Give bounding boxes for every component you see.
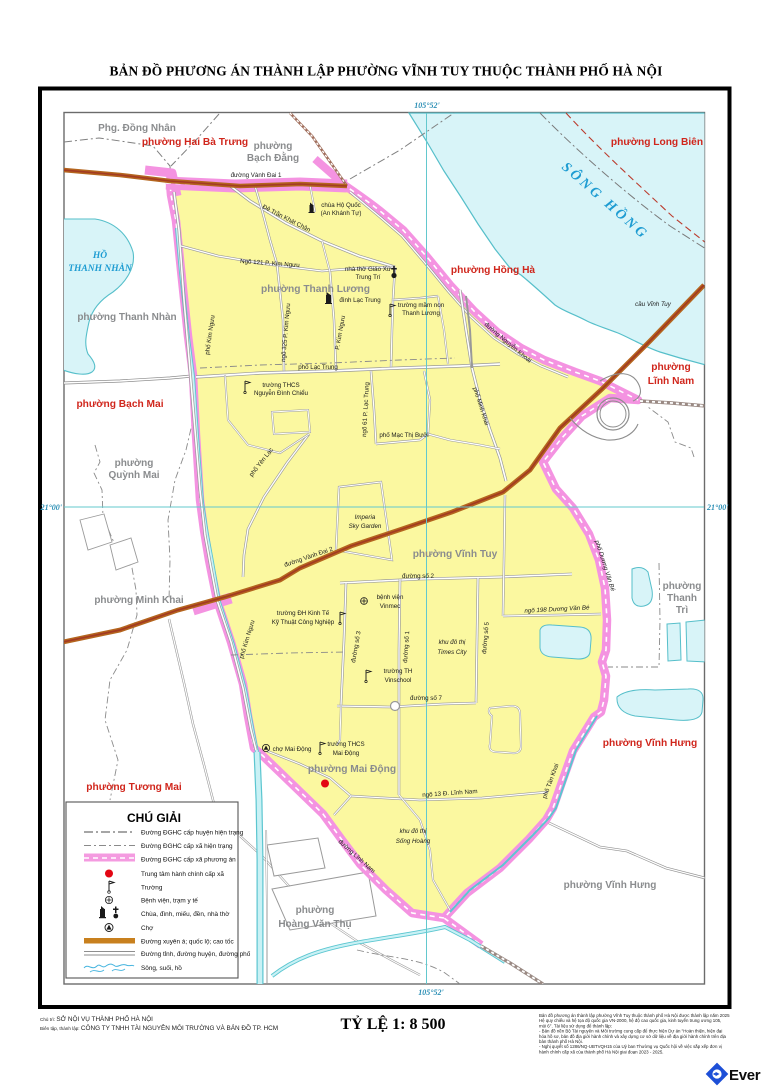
svg-text:trường TH: trường TH [384,668,413,675]
svg-text:phố Mạc Thị Bưởi: phố Mạc Thị Bưởi [379,432,428,439]
svg-text:THANH NHÀN: THANH NHÀN [68,262,133,274]
svg-text:CHÚ GIẢI: CHÚ GIẢI [127,810,181,825]
svg-text:phường Mai Động: phường Mai Động [308,764,396,775]
svg-text:Trung tâm hành chính cấp xã: Trung tâm hành chính cấp xã [141,869,224,878]
svg-text:Bệnh viện, trạm y tế: Bệnh viện, trạm y tế [141,896,198,905]
svg-text:Đường ĐGHC cấp xã phương án: Đường ĐGHC cấp xã phương án [141,855,236,864]
svg-text:phường: phường [115,458,154,469]
svg-text:Sống Hoàng: Sống Hoàng [396,838,431,845]
svg-text:Vinschool: Vinschool [385,677,412,684]
svg-text:phường: phường [254,141,293,152]
svg-text:21°00': 21°00' [706,503,729,512]
svg-text:Times City: Times City [437,649,467,656]
svg-text:bệnh viện: bệnh viện [377,594,404,601]
svg-text:Sông, suối, hồ: Sông, suối, hồ [141,963,182,972]
svg-text:Trường: Trường [141,885,163,892]
svg-text:TỶ LỆ 1: 8 500: TỶ LỆ 1: 8 500 [341,1014,446,1033]
svg-text:Vinmec: Vinmec [380,603,401,610]
svg-text:105°52': 105°52' [414,101,440,110]
svg-text:105°52': 105°52' [418,988,444,997]
svg-text:đường số 7: đường số 7 [410,695,442,702]
svg-text:Đường tỉnh, đường huyện, đường: Đường tỉnh, đường huyện, đường phố [141,949,251,958]
svg-text:phường Vĩnh Tuy: phường Vĩnh Tuy [413,549,498,560]
svg-text:trường mầm non: trường mầm non [398,302,445,309]
svg-text:Quỳnh Mai: Quỳnh Mai [108,470,159,481]
svg-text:phường Vĩnh Hưng: phường Vĩnh Hưng [564,880,657,891]
svg-text:Trì: Trì [676,605,688,616]
svg-text:Bạch Đằng: Bạch Đằng [247,151,299,164]
svg-text:đường số 2: đường số 2 [402,573,434,580]
svg-text:Trung Trí: Trung Trí [356,274,381,281]
svg-text:Lĩnh Nam: Lĩnh Nam [648,376,694,387]
svg-text:Hoàng Văn Thụ: Hoàng Văn Thụ [278,919,351,930]
svg-text:phường Bạch Mai: phường Bạch Mai [76,399,163,410]
svg-text:nhà thờ Giáo Xứ: nhà thờ Giáo Xứ [345,266,391,273]
svg-text:Thanh Lương: Thanh Lương [402,310,440,317]
svg-text:phường Thanh Lương: phường Thanh Lương [261,284,370,295]
svg-text:phường: phường [663,581,702,592]
svg-text:Đường xuyên á; quốc lộ; cao tố: Đường xuyên á; quốc lộ; cao tốc [141,937,234,946]
svg-text:phường: phường [296,905,335,916]
svg-text:đình Lạc Trung: đình Lạc Trung [339,297,381,304]
svg-text:Sky Garden: Sky Garden [349,523,382,530]
svg-text:Chùa, đình, miếu, đền, nhà thờ: Chùa, đình, miếu, đền, nhà thờ [141,909,229,918]
svg-text:trường ĐH Kinh Tế: trường ĐH Kinh Tế [277,610,330,617]
svg-text:hành chính cấp xã của thành ph: hành chính cấp xã của thành phố Hà Nội g… [539,1049,664,1054]
svg-text:Mai Động: Mai Động [333,750,360,757]
svg-text:chợ Mai Động: chợ Mai Động [273,746,312,753]
svg-text:khu đô thị: khu đô thị [400,828,427,835]
svg-text:BẢN ĐỒ PHƯƠNG ÁN THÀNH LẬP PHƯ: BẢN ĐỒ PHƯƠNG ÁN THÀNH LẬP PHƯỜNG VĨNH T… [109,64,662,79]
svg-text:Kỹ Thuật Công Nghiệp: Kỹ Thuật Công Nghiệp [272,619,335,626]
svg-text:phường Hai Bà Trưng: phường Hai Bà Trưng [142,137,248,148]
svg-text:khu đô thị: khu đô thị [439,639,466,646]
svg-text:Thanh: Thanh [667,593,697,604]
svg-text:phường Tương Mai: phường Tương Mai [86,782,182,793]
svg-text:Nguyễn Đình Chiểu: Nguyễn Đình Chiểu [254,390,309,397]
svg-text:Ever: Ever [729,1067,761,1084]
svg-text:Đường ĐGHC cấp xã hiện trạng: Đường ĐGHC cấp xã hiện trạng [141,841,233,850]
svg-text:21°00': 21°00' [40,503,63,512]
svg-text:(An Khánh Tự): (An Khánh Tự) [321,210,362,217]
svg-text:cầu Vĩnh Tuy: cầu Vĩnh Tuy [635,301,672,308]
svg-text:phường Long Biên: phường Long Biên [611,137,703,148]
svg-text:phường Thanh Nhàn: phường Thanh Nhàn [77,312,176,323]
svg-text:phố Lạc Trung: phố Lạc Trung [298,364,338,371]
svg-text:đường Vành Đai 1: đường Vành Đai 1 [231,172,282,179]
svg-text:phường Vĩnh Hưng: phường Vĩnh Hưng [603,738,697,749]
svg-text:phường Hồng Hà: phường Hồng Hà [451,264,536,276]
svg-text:trường THCS: trường THCS [262,382,299,389]
svg-text:chùa Hộ Quốc: chùa Hộ Quốc [321,202,361,209]
svg-text:phường Minh Khai: phường Minh Khai [94,595,184,606]
svg-text:Chợ: Chợ [141,925,153,932]
svg-text:phường: phường [651,362,691,373]
svg-text:Đường ĐGHC cấp huyện hiện trạn: Đường ĐGHC cấp huyện hiện trạng [141,828,244,837]
svg-text:trường THCS: trường THCS [327,741,364,748]
svg-text:Phg. Đồng Nhân: Phg. Đồng Nhân [98,122,176,134]
svg-text:Imperia: Imperia [355,514,376,521]
